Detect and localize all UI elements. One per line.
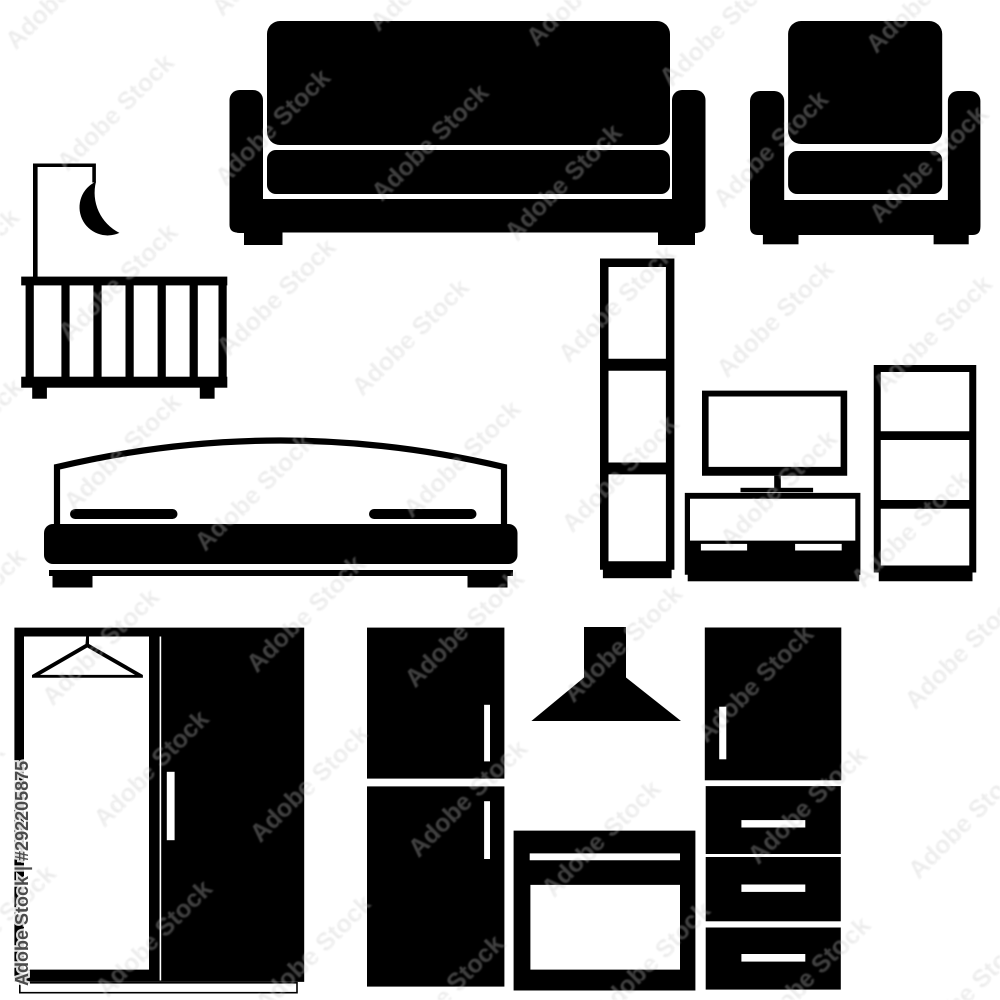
svg-text:Adobe Stock | #292205875: Adobe Stock | #292205875 <box>12 761 32 986</box>
